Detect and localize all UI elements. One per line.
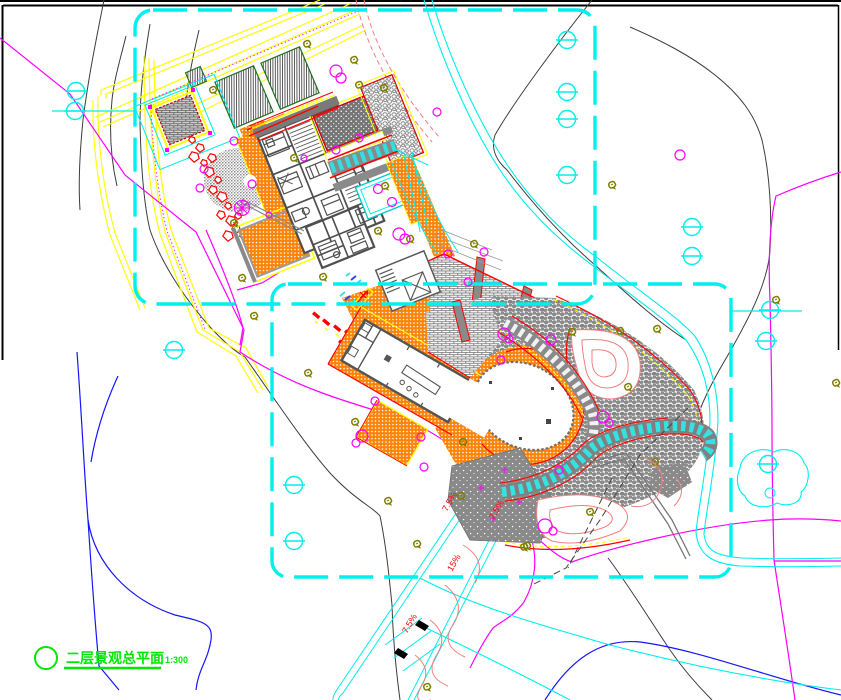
svg-text:1:300: 1:300 xyxy=(165,655,188,665)
svg-text:二层景观总平面: 二层景观总平面 xyxy=(66,650,164,666)
